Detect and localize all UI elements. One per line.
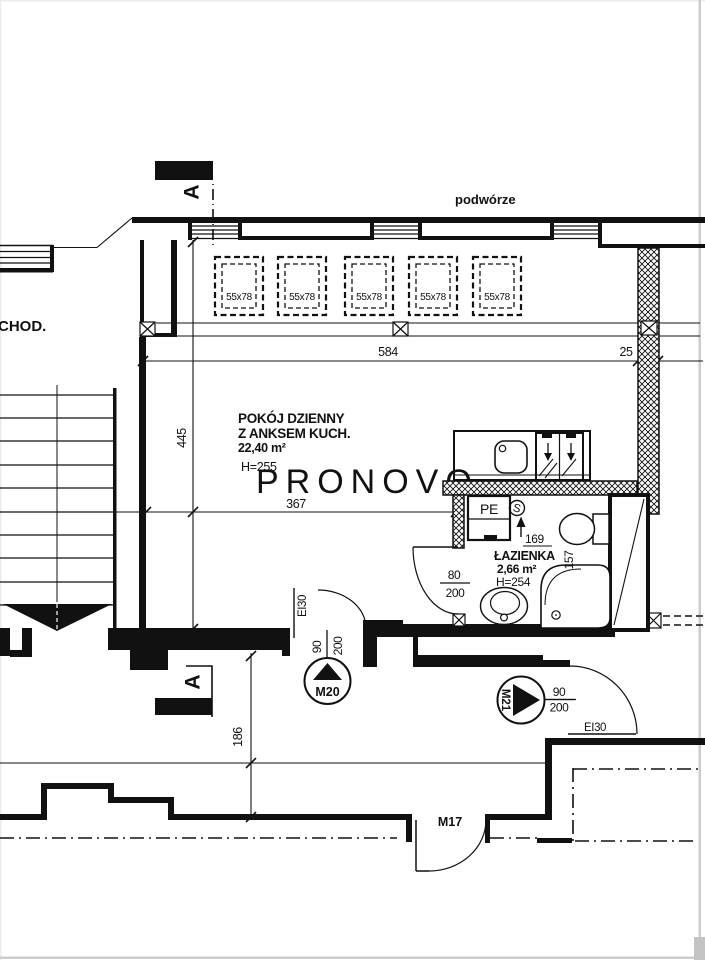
support-box-icon xyxy=(453,614,465,626)
dim-367: 367 xyxy=(286,497,306,511)
skylight: 55x78 xyxy=(345,257,393,315)
bathroom-left-wall xyxy=(453,495,464,548)
bathroom-name: ŁAZIENKA xyxy=(494,549,555,563)
installation-shaft xyxy=(610,495,648,630)
door-size-m20: 90 200 xyxy=(310,636,345,656)
skylight-size-label: 55x78 xyxy=(226,292,252,303)
bathroom-top-wall xyxy=(443,481,637,495)
washbasin-icon xyxy=(481,588,528,625)
window-icon xyxy=(192,226,238,239)
courtyard-label: podwórze xyxy=(455,192,516,207)
skylight-size-label: 55x78 xyxy=(356,292,382,303)
hatched-pillar xyxy=(638,248,659,514)
dim-169: 169 xyxy=(525,532,545,546)
door-width: 80 xyxy=(448,568,461,582)
dim-584: 584 xyxy=(378,345,398,359)
door-width: 90 xyxy=(553,685,566,699)
section-marker-label: A xyxy=(181,184,204,199)
section-marker-bottom: A xyxy=(155,666,212,717)
skylight: 55x78 xyxy=(409,257,457,315)
door-arc xyxy=(318,590,366,628)
door-height: 200 xyxy=(550,701,570,715)
outline-diagonal xyxy=(97,218,132,248)
door-marker-label: M20 xyxy=(315,685,339,699)
dim-186: 186 xyxy=(231,727,245,747)
skylight: 55x78 xyxy=(278,257,326,315)
skylight-size-label: 55x78 xyxy=(289,292,315,303)
door-height: 200 xyxy=(446,586,466,600)
support-box-icon xyxy=(140,322,155,336)
room-name-line2: Z ANKSEM KUCH. xyxy=(238,426,350,441)
toilet-icon xyxy=(560,514,610,545)
skylights: 55x78 55x78 55x78 55x78 55x78 xyxy=(215,257,521,315)
dim-25: 25 xyxy=(619,345,633,359)
staircase xyxy=(0,385,117,631)
floor-plan-drawing: PRONOVO xyxy=(0,0,705,960)
door-marker-label: M21 xyxy=(499,689,511,712)
room-area: 22,40 m² xyxy=(238,441,286,455)
bottom-exterior-wall xyxy=(0,786,409,817)
section-marker-top: A xyxy=(155,161,213,245)
room-height: H=255 xyxy=(241,460,277,474)
skylight-size-label: 55x78 xyxy=(484,292,510,303)
door-marker-m17-label: M17 xyxy=(438,815,462,829)
section-marker-label: A xyxy=(182,674,205,689)
dim-157: 157 xyxy=(562,550,576,570)
window-icon xyxy=(374,226,418,239)
support-box-icon xyxy=(641,321,657,335)
support-box-icon xyxy=(393,322,408,336)
window-icon xyxy=(554,226,598,239)
sink-icon xyxy=(495,441,527,473)
shower-icon xyxy=(541,565,610,628)
bathroom-area: 2,66 m² xyxy=(497,562,537,576)
door-height: 200 xyxy=(331,636,345,656)
dashed-duct-lines xyxy=(663,616,703,625)
fire-rating-m20: EI30 xyxy=(297,595,309,617)
room-name: POKÓJ DZIENNY xyxy=(238,411,345,426)
adjacent-room-label: CHOD. xyxy=(0,318,46,335)
fire-rating-m21: EI30 xyxy=(584,722,606,734)
bathroom-height: H=254 xyxy=(496,575,531,589)
floor-plan-sheet: PRONOVO xyxy=(0,0,705,960)
dim-445: 445 xyxy=(175,428,189,448)
left-window-band xyxy=(0,245,54,273)
door-size-m21: 90 200 xyxy=(546,685,574,715)
door-size-bathroom: 80 200 xyxy=(440,568,470,600)
skylight-size-label: 55x78 xyxy=(420,292,446,303)
skylight: 55x78 xyxy=(473,257,521,315)
stove-icon xyxy=(536,433,583,480)
centerlines xyxy=(0,768,698,841)
skylight: 55x78 xyxy=(215,257,263,315)
pe-label: PE xyxy=(480,501,498,517)
top-exterior-wall xyxy=(132,217,705,248)
door-width: 90 xyxy=(310,640,324,653)
